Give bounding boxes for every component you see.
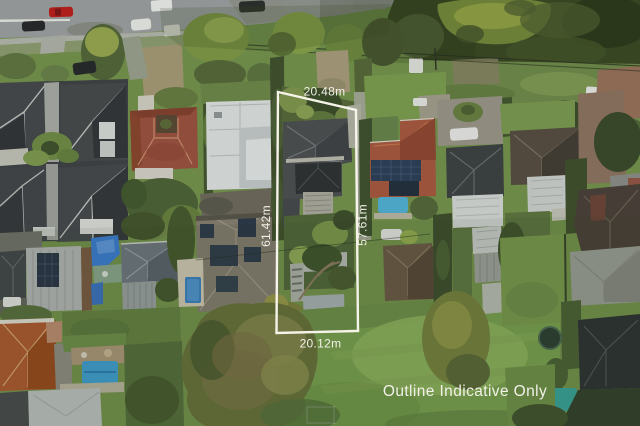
svg-text:20.12m: 20.12m [300, 337, 342, 351]
svg-text:61.42m: 61.42m [259, 205, 273, 247]
svg-text:57.61m: 57.61m [356, 204, 370, 246]
svg-text:20.48m: 20.48m [304, 85, 346, 99]
svg-text:Outline Indicative Only: Outline Indicative Only [383, 383, 547, 400]
